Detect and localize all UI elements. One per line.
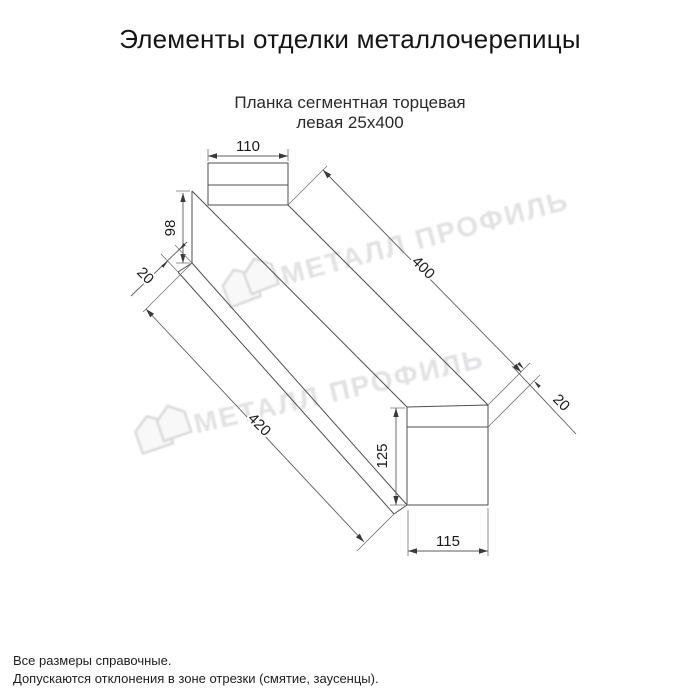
watermark-band-1: МЕТАЛЛ ПРОФИЛЬ bbox=[216, 175, 572, 308]
watermark-text: МЕТАЛЛ ПРОФИЛЬ bbox=[191, 342, 487, 439]
dim-label-400: 400 bbox=[408, 253, 438, 283]
part-outline bbox=[178, 163, 488, 514]
technical-drawing: МЕТАЛЛ ПРОФИЛЬ МЕТАЛЛ ПРОФИЛЬ bbox=[0, 0, 700, 700]
dimension-115: 115 bbox=[408, 508, 488, 556]
dimension-125: 125 bbox=[374, 408, 405, 505]
dim-label-115: 115 bbox=[436, 533, 460, 550]
notes: Все размеры справочные. Допускаются откл… bbox=[13, 652, 673, 688]
note-line1: Все размеры справочные. bbox=[13, 652, 673, 670]
metal-profile-logo-icon bbox=[218, 254, 281, 308]
dimension-20-right: 20 bbox=[488, 362, 576, 434]
dim-label-125: 125 bbox=[374, 443, 391, 468]
metal-profile-logo-icon bbox=[131, 401, 193, 453]
note-line2: Допускаются отклонения в зоне отрезки (с… bbox=[13, 670, 673, 688]
dim-label-20-right: 20 bbox=[549, 391, 573, 415]
page: Элементы отделки металлочерепицы Планка … bbox=[0, 0, 700, 700]
dim-label-20-left: 20 bbox=[133, 264, 157, 288]
dimension-110: 110 bbox=[208, 138, 288, 161]
dim-label-110: 110 bbox=[236, 138, 260, 155]
dim-label-98: 98 bbox=[162, 220, 179, 237]
